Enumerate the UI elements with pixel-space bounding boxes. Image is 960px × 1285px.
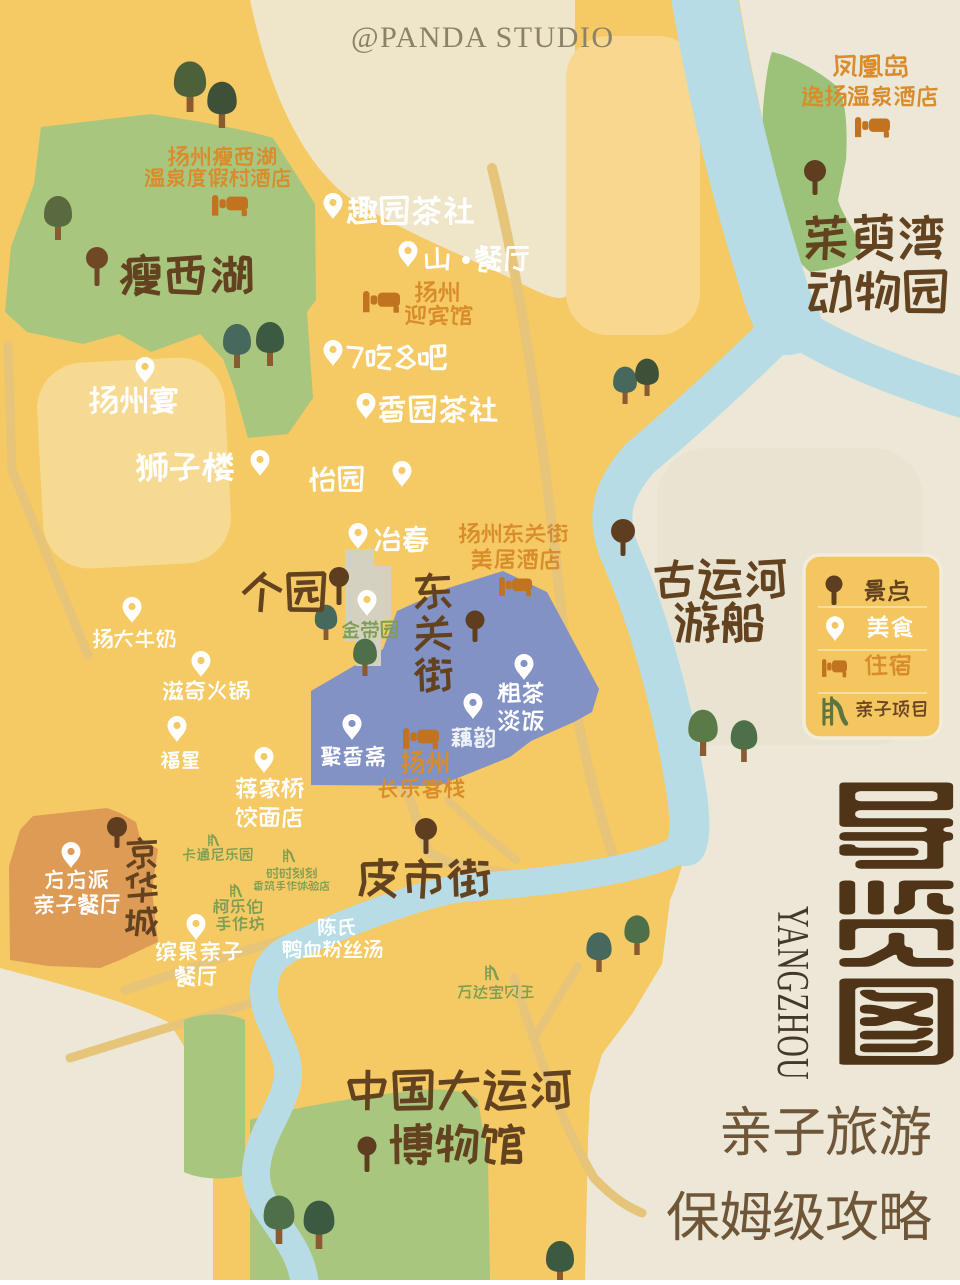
svg-text:YANGZHOU: YANGZHOU xyxy=(767,906,816,1081)
svg-text:@PANDA STUDIO: @PANDA STUDIO xyxy=(351,21,615,54)
